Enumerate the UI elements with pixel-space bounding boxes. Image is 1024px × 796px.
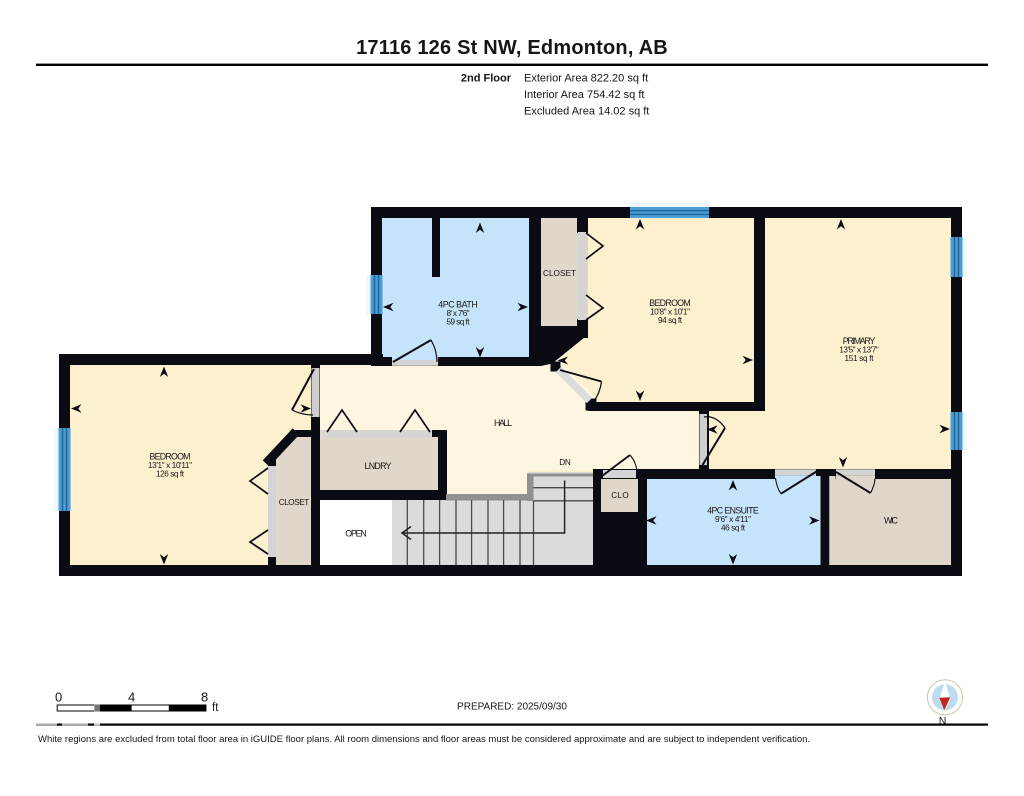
svg-text:4PC BATH: 4PC BATH [438,300,478,310]
svg-text:4: 4 [128,690,135,705]
svg-text:PREPARED: 2025/09/30: PREPARED: 2025/09/30 [457,702,567,713]
svg-text:59 sq ft: 59 sq ft [447,318,471,327]
svg-text:CLOSET: CLOSET [279,498,310,507]
svg-text:BEDROOM: BEDROOM [150,452,191,462]
svg-text:Exterior Area 822.20 sq ft: Exterior Area 822.20 sq ft [524,73,648,85]
svg-text:CLOSET: CLOSET [543,269,576,278]
svg-text:OPEN: OPEN [345,529,367,539]
svg-text:4PC ENSUITE: 4PC ENSUITE [707,506,759,516]
svg-text:17116 126 St NW, Edmonton, AB: 17116 126 St NW, Edmonton, AB [356,37,668,59]
svg-text:2nd Floor: 2nd Floor [461,73,512,85]
svg-text:151 sq ft: 151 sq ft [845,354,875,363]
svg-text:94 sq ft: 94 sq ft [658,316,683,325]
svg-text:PRIMARY: PRIMARY [843,336,876,346]
svg-text:ft: ft [212,702,219,714]
svg-text:BEDROOM: BEDROOM [649,298,691,308]
svg-text:CLO: CLO [611,491,629,500]
svg-text:Interior Area 754.42 sq ft: Interior Area 754.42 sq ft [524,89,644,101]
svg-text:DN: DN [559,458,571,467]
svg-text:Excluded Area 14.02 sq ft: Excluded Area 14.02 sq ft [524,106,649,118]
svg-text:126 sq ft: 126 sq ft [156,470,185,479]
svg-text:0: 0 [55,690,62,705]
svg-text:White regions are excluded fro: White regions are excluded from total fl… [38,734,810,745]
svg-text:46 sq ft: 46 sq ft [721,524,746,533]
svg-text:WIC: WIC [884,516,899,526]
svg-text:LNDRY: LNDRY [365,461,392,471]
svg-text:8: 8 [201,690,208,705]
svg-text:HALL: HALL [494,418,512,428]
